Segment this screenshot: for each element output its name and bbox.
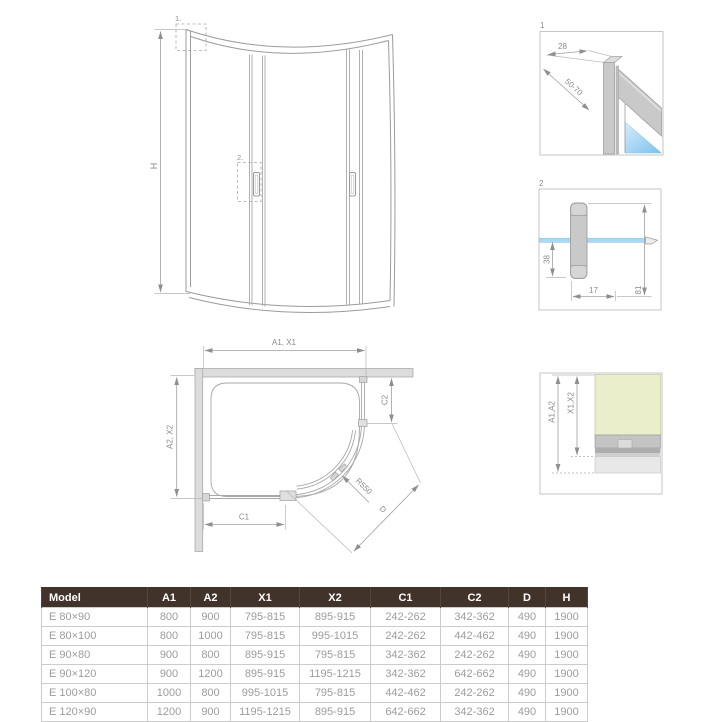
wall-top xyxy=(195,369,413,378)
value-cell: 442-462 xyxy=(371,684,441,703)
detail-1-drawing: 1 28 50-70 xyxy=(540,21,663,155)
value-cell: 242-262 xyxy=(441,684,509,703)
door-handle-right xyxy=(350,173,356,197)
value-cell: 1900 xyxy=(546,646,588,665)
glass-section xyxy=(540,238,646,242)
dim-label-28: 28 xyxy=(558,42,567,51)
detail-2-number: 2 xyxy=(539,179,544,188)
value-cell: 800 xyxy=(148,608,191,627)
value-cell: 795-815 xyxy=(300,646,371,665)
value-cell: 1900 xyxy=(546,608,588,627)
value-cell: 642-662 xyxy=(371,703,441,722)
fixed-panel-bottom xyxy=(210,496,289,499)
value-cell: 242-262 xyxy=(441,646,509,665)
value-cell: 642-662 xyxy=(441,665,509,684)
detail-1-marker-label: 1. xyxy=(175,14,181,23)
value-cell: 490 xyxy=(509,646,546,665)
value-cell: 342-362 xyxy=(441,608,509,627)
model-cell: E 80×90 xyxy=(42,608,148,627)
plan-view-drawing: A1, X1 A2, X2 C1 C2 D R550 xyxy=(166,338,421,553)
technical-drawings: H 1. 2. 1 xyxy=(0,0,720,585)
value-cell: 900 xyxy=(191,703,231,722)
column-header-h: H xyxy=(546,588,588,608)
model-cell: E 80×100 xyxy=(42,627,148,646)
dim-label-81: 81 xyxy=(634,285,643,294)
table-body: E 80×90800900795-815895-915242-262342-36… xyxy=(42,608,588,722)
table-row: E 80×90800900795-815895-915242-262342-36… xyxy=(42,608,588,627)
model-cell: E 90×80 xyxy=(42,646,148,665)
dim-label-a1a2: A1,A2 xyxy=(548,401,557,423)
table-head: ModelA1A2X1X2C1C2DH xyxy=(42,588,588,608)
value-cell: 1900 xyxy=(546,665,588,684)
spec-sheet-page: { "drawings": { "front_view": { "height_… xyxy=(0,0,720,720)
column-header-c2: C2 xyxy=(441,588,509,608)
value-cell: 800 xyxy=(191,684,231,703)
tray-edge xyxy=(595,453,661,457)
value-cell: 490 xyxy=(509,627,546,646)
value-cell: 1900 xyxy=(546,684,588,703)
column-header-model: Model xyxy=(42,588,148,608)
door-handle-left xyxy=(254,173,260,197)
wall-left xyxy=(195,369,203,552)
value-cell: 1900 xyxy=(546,703,588,722)
value-cell: 900 xyxy=(191,608,231,627)
profile-channel xyxy=(616,66,619,154)
column-header-d: D xyxy=(509,588,546,608)
dim-label-c2: C2 xyxy=(381,394,390,405)
value-cell: 895-915 xyxy=(300,608,371,627)
handle-section xyxy=(571,203,588,279)
dim-label-a2x2: A2, X2 xyxy=(166,424,175,449)
value-cell: 800 xyxy=(191,646,231,665)
value-cell: 895-915 xyxy=(300,703,371,722)
fixed-panel-right xyxy=(362,383,365,424)
value-cell: 995-1015 xyxy=(300,627,371,646)
front-view-drawing: H 1. 2. xyxy=(149,14,395,313)
value-cell: 1200 xyxy=(148,703,191,722)
dim-label-17: 17 xyxy=(589,286,598,295)
dimensions-table: ModelA1A2X1X2C1C2DH E 80×90800900795-815… xyxy=(41,587,588,722)
column-header-c1: C1 xyxy=(371,588,441,608)
value-cell: 895-915 xyxy=(231,646,300,665)
table-row: E 100×801000800995-1015795-815442-462242… xyxy=(42,684,588,703)
value-cell: 342-362 xyxy=(371,646,441,665)
dim-label-x1x2: X1,X2 xyxy=(567,392,576,414)
detail-1-number: 1 xyxy=(540,21,545,30)
dim-label-a1x1: A1, X1 xyxy=(272,338,297,347)
value-cell: 442-462 xyxy=(441,627,509,646)
column-header-x2: X2 xyxy=(300,588,371,608)
table-header-row: ModelA1A2X1X2C1C2DH xyxy=(42,588,588,608)
dim-label-38: 38 xyxy=(543,255,552,264)
value-cell: 490 xyxy=(509,665,546,684)
wall-bracket-top xyxy=(360,377,368,383)
value-cell: 895-915 xyxy=(231,665,300,684)
wall-profile xyxy=(604,63,615,155)
dim-label-h: H xyxy=(149,163,159,170)
value-cell: 242-262 xyxy=(371,608,441,627)
value-cell: 342-362 xyxy=(441,703,509,722)
door-stop-right xyxy=(359,420,368,427)
column-header-a2: A2 xyxy=(191,588,231,608)
value-cell: 1195-1215 xyxy=(231,703,300,722)
dim-label-d: D xyxy=(378,504,389,515)
tray-lip xyxy=(595,448,661,453)
wall-section-drawing: A1,A2 X1,X2 xyxy=(540,373,662,494)
wall-bracket-bottom xyxy=(203,494,210,502)
value-cell: 795-815 xyxy=(231,608,300,627)
value-cell: 1200 xyxy=(191,665,231,684)
profile-notch xyxy=(618,440,632,449)
value-cell: 490 xyxy=(509,703,546,722)
value-cell: 1900 xyxy=(546,627,588,646)
value-cell: 1195-1215 xyxy=(300,665,371,684)
detail-2-drawing: 2 38 17 81 xyxy=(539,179,661,310)
value-cell: 800 xyxy=(148,627,191,646)
shower-tray xyxy=(211,383,360,497)
door-roller xyxy=(330,472,338,481)
value-cell: 342-362 xyxy=(371,665,441,684)
door-roller xyxy=(339,464,348,472)
table-row: E 90×80900800895-915795-815342-362242-26… xyxy=(42,646,588,665)
value-cell: 490 xyxy=(509,684,546,703)
enclosure-frame xyxy=(186,30,395,313)
column-header-a1: A1 xyxy=(148,588,191,608)
dim-label-c1: C1 xyxy=(239,513,250,522)
detail-2-marker-label: 2. xyxy=(237,153,243,162)
value-cell: 1000 xyxy=(191,627,231,646)
value-cell: 795-815 xyxy=(231,627,300,646)
model-cell: E 120×90 xyxy=(42,703,148,722)
table-row: E 80×1008001000795-815995-1015242-262442… xyxy=(42,627,588,646)
model-cell: E 90×120 xyxy=(42,665,148,684)
column-header-x1: X1 xyxy=(231,588,300,608)
value-cell: 242-262 xyxy=(371,627,441,646)
value-cell: 490 xyxy=(509,608,546,627)
value-cell: 1000 xyxy=(148,684,191,703)
model-cell: E 100×80 xyxy=(42,684,148,703)
value-cell: 900 xyxy=(148,665,191,684)
floor-block xyxy=(595,457,661,474)
value-cell: 995-1015 xyxy=(231,684,300,703)
table-row: E 90×1209001200895-9151195-1215342-36264… xyxy=(42,665,588,684)
table-row: E 120×9012009001195-1215895-915642-66234… xyxy=(42,703,588,722)
wall-block xyxy=(595,375,661,436)
value-cell: 795-815 xyxy=(300,684,371,703)
value-cell: 900 xyxy=(148,646,191,665)
dim-label-r550: R550 xyxy=(354,476,374,496)
